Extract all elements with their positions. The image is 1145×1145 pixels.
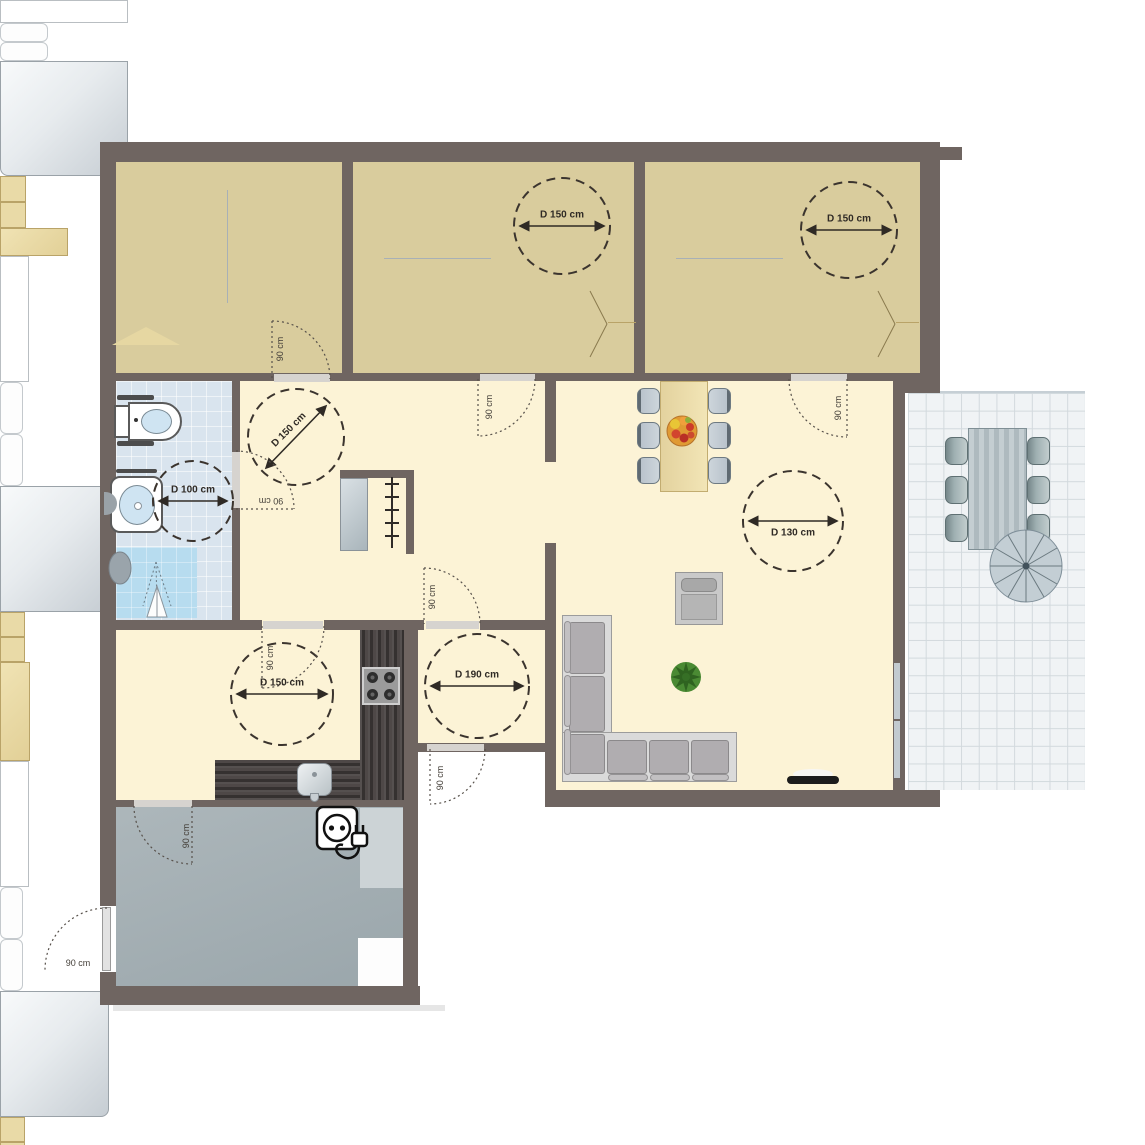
building-shadow xyxy=(113,1005,445,1011)
stove-burner xyxy=(384,672,395,683)
turning-circle-label: D 150 cm xyxy=(827,214,871,225)
turning-circle-label: D 150 cm xyxy=(540,210,584,221)
dining-chair xyxy=(637,457,660,484)
armchair-seat xyxy=(681,594,717,620)
lamp-icon xyxy=(647,172,667,192)
sofa-back-cushion xyxy=(564,621,571,673)
front-door-leaf xyxy=(102,907,111,971)
wardrobe-3-shelf-line xyxy=(896,322,919,323)
floor-plan: D 150 cm D 150 cm D 150 cm D 100 cm D 15… xyxy=(0,0,1145,1145)
wall-hall-bottom-c xyxy=(480,620,556,630)
wall-utility-bottom xyxy=(418,743,548,752)
wall-bedroom-divider-2 xyxy=(634,162,645,373)
kitchen-counter-horizontal xyxy=(215,760,360,800)
sofa-back-cushion xyxy=(650,774,690,781)
utility-hall-floor xyxy=(418,622,545,743)
terrace-chair xyxy=(1027,476,1050,504)
wall-bedroom-band xyxy=(116,373,920,381)
armchair-cushion xyxy=(681,578,717,592)
kitchen-counter-vertical xyxy=(360,630,404,800)
door-width-label: 90 cm xyxy=(275,337,285,362)
nightstand xyxy=(0,1117,25,1142)
wall-living-left-upper xyxy=(545,381,556,462)
wall-right-bedrooms xyxy=(920,142,940,393)
lamp-icon xyxy=(142,164,162,184)
lamp-icon xyxy=(355,324,375,344)
wall-hall-bottom-b xyxy=(324,620,424,630)
mattress-divider xyxy=(227,190,228,303)
terrace-chair xyxy=(1027,514,1050,542)
pillow xyxy=(0,382,23,434)
door-width-label: 90 cm xyxy=(265,646,275,671)
wall-bedroom-divider-1 xyxy=(342,162,353,373)
door-width-label: 90 cm xyxy=(484,395,494,420)
sink-tap xyxy=(310,793,319,802)
nightstand xyxy=(0,637,25,662)
door-width-label: 90 cm xyxy=(833,396,843,421)
sofa-cushion xyxy=(649,740,689,774)
dining-chair xyxy=(708,457,731,484)
turning-circle-label: D 130 cm xyxy=(771,528,815,539)
bedroom-2-floor xyxy=(353,162,634,381)
double-bed-2 xyxy=(0,486,109,612)
mattress-divider xyxy=(384,258,491,259)
stove-burner xyxy=(367,672,378,683)
door-width-label: 90 cm xyxy=(435,766,445,791)
pillow xyxy=(0,434,23,486)
wardrobe-1 xyxy=(0,228,68,256)
hallway-floor xyxy=(240,381,545,630)
lamp-icon xyxy=(295,164,315,184)
pillow xyxy=(0,939,23,991)
sofa-back-cushion xyxy=(692,774,729,781)
stove-burner xyxy=(384,689,395,700)
grab-bar xyxy=(116,469,157,473)
grab-bar xyxy=(117,441,154,446)
storage-mat xyxy=(358,938,403,986)
dining-table xyxy=(660,381,708,492)
sofa-back-cushion xyxy=(608,774,648,781)
terrace-chair xyxy=(945,476,968,504)
washbasin-drain xyxy=(134,502,142,510)
wardrobe-1-roof xyxy=(112,327,180,345)
dining-chair xyxy=(637,422,660,449)
double-bed-3 xyxy=(0,991,109,1117)
wall-living-left-lower xyxy=(545,543,556,790)
wall-bathroom-right xyxy=(232,381,240,622)
lamp-icon xyxy=(355,172,375,192)
dining-chair xyxy=(708,422,731,449)
bedroom-3-floor xyxy=(645,162,920,381)
pillow xyxy=(0,887,23,939)
wall-bottom-left-wing xyxy=(100,986,420,1005)
nightstand xyxy=(0,612,25,637)
wall-living-bottom xyxy=(545,790,940,807)
toilet-bowl-inner xyxy=(141,409,172,434)
wall-living-terrace xyxy=(893,393,905,790)
wall-terrace-corner xyxy=(893,375,940,393)
wardrobe-2 xyxy=(0,662,30,761)
kitchen-sink xyxy=(297,763,332,796)
sink-drain xyxy=(312,772,317,777)
sofa-cushion xyxy=(569,622,605,674)
nightstand xyxy=(0,202,26,228)
sofa-cushion xyxy=(569,676,605,732)
bed-head-1 xyxy=(0,0,128,23)
hall-living-opening xyxy=(545,462,556,543)
door-width-label: 90 cm xyxy=(181,824,191,849)
pillow xyxy=(0,42,48,61)
mattress-divider xyxy=(676,258,783,259)
nightstand xyxy=(0,176,26,202)
door-width-label: 90 cm xyxy=(259,496,284,506)
bed-head-3 xyxy=(0,761,29,887)
door-width-label: 90 cm xyxy=(66,958,91,968)
turning-circle-label: D 100 cm xyxy=(171,485,215,496)
terrace-chair xyxy=(945,514,968,542)
sofa-back-cushion xyxy=(564,729,571,775)
door-width-label: 90 cm xyxy=(427,585,437,610)
wall-left-wing-right xyxy=(403,622,418,1005)
lamp-icon xyxy=(647,324,667,344)
wall-storage-top xyxy=(116,800,403,807)
toilet-flush-dot xyxy=(134,418,138,422)
terrace-chair xyxy=(945,437,968,465)
tv-screen xyxy=(787,776,839,784)
wall-hall-bottom-a xyxy=(116,620,262,630)
storage-panel xyxy=(360,808,403,888)
terrace-table xyxy=(968,428,1027,550)
terrace-chair xyxy=(1027,437,1050,465)
grab-bar xyxy=(117,395,154,400)
turning-circle-label: D 150 cm xyxy=(260,678,304,689)
wall-top xyxy=(100,142,940,162)
wall-closet-top xyxy=(340,470,414,478)
pillow xyxy=(0,23,48,42)
sofa-cushion xyxy=(607,740,647,774)
turning-circle-label: D 190 cm xyxy=(455,670,499,681)
wall-top-extension xyxy=(940,147,962,160)
sofa-back-cushion xyxy=(564,675,571,727)
wardrobe-2-shelf-line xyxy=(608,322,636,323)
bed-head-2 xyxy=(0,256,29,382)
bedroom-1-floor xyxy=(116,162,342,381)
dining-chair xyxy=(708,388,731,414)
stove-burner xyxy=(367,689,378,700)
shower-floor xyxy=(116,547,197,618)
sofa-cushion xyxy=(691,740,729,774)
wall-closet-right xyxy=(406,478,414,554)
dining-chair xyxy=(637,388,660,414)
closet-glass-panel xyxy=(340,478,368,551)
sofa-cushion-corner xyxy=(569,734,605,774)
